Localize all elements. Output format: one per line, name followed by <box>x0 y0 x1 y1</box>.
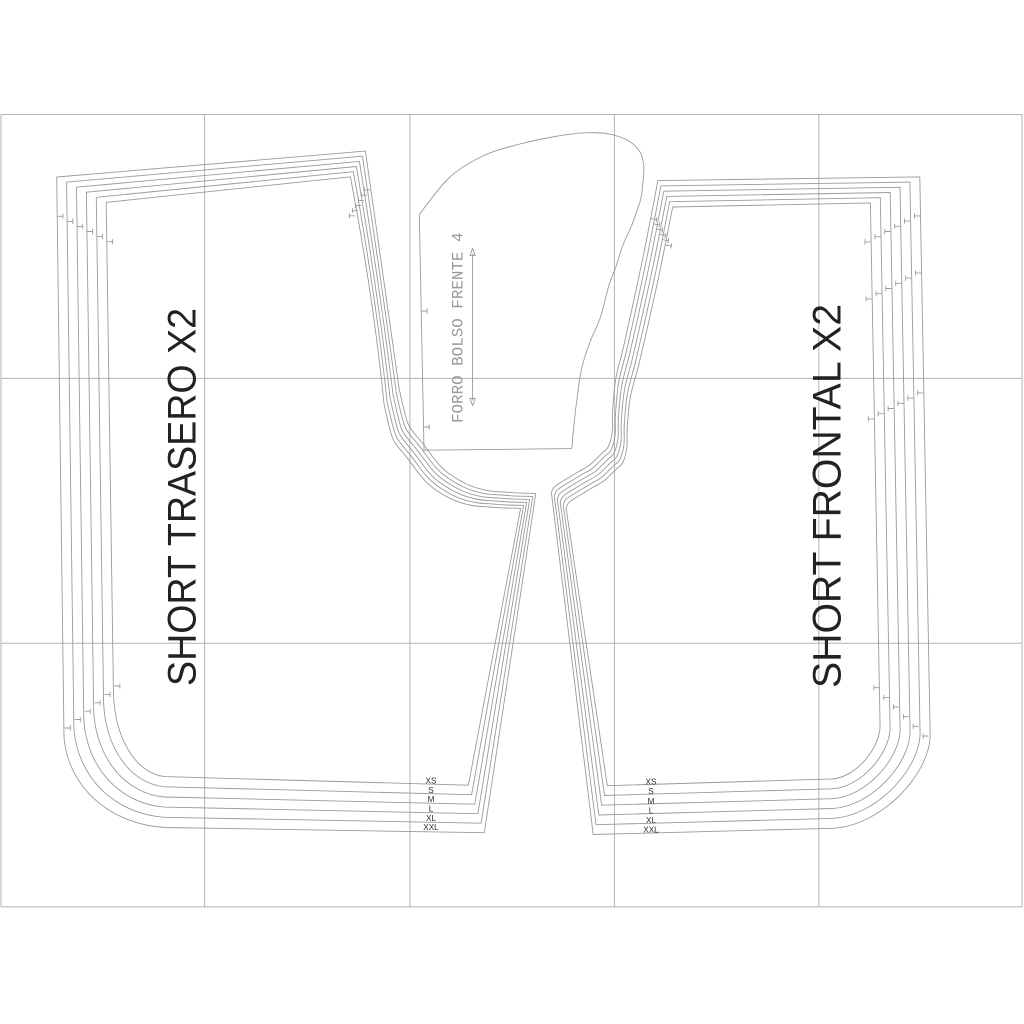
svg-text:XXL: XXL <box>423 823 439 832</box>
svg-text:M: M <box>648 797 655 806</box>
svg-text:L: L <box>429 804 434 813</box>
svg-text:XL: XL <box>646 816 656 825</box>
svg-text:XS: XS <box>426 777 437 786</box>
svg-text:SHORT FRONTAL X2: SHORT FRONTAL X2 <box>806 304 850 688</box>
svg-text:XL: XL <box>426 814 436 823</box>
svg-text:S: S <box>648 787 654 796</box>
svg-text:SHORT TRASERO X2: SHORT TRASERO X2 <box>160 308 204 686</box>
svg-text:L: L <box>649 807 654 816</box>
svg-text:FORRO BOLSO FRENTE 4: FORRO BOLSO FRENTE 4 <box>450 233 468 424</box>
svg-text:S: S <box>428 786 434 795</box>
svg-text:XS: XS <box>646 777 657 786</box>
svg-text:XXL: XXL <box>643 826 659 835</box>
svg-text:M: M <box>428 795 435 804</box>
